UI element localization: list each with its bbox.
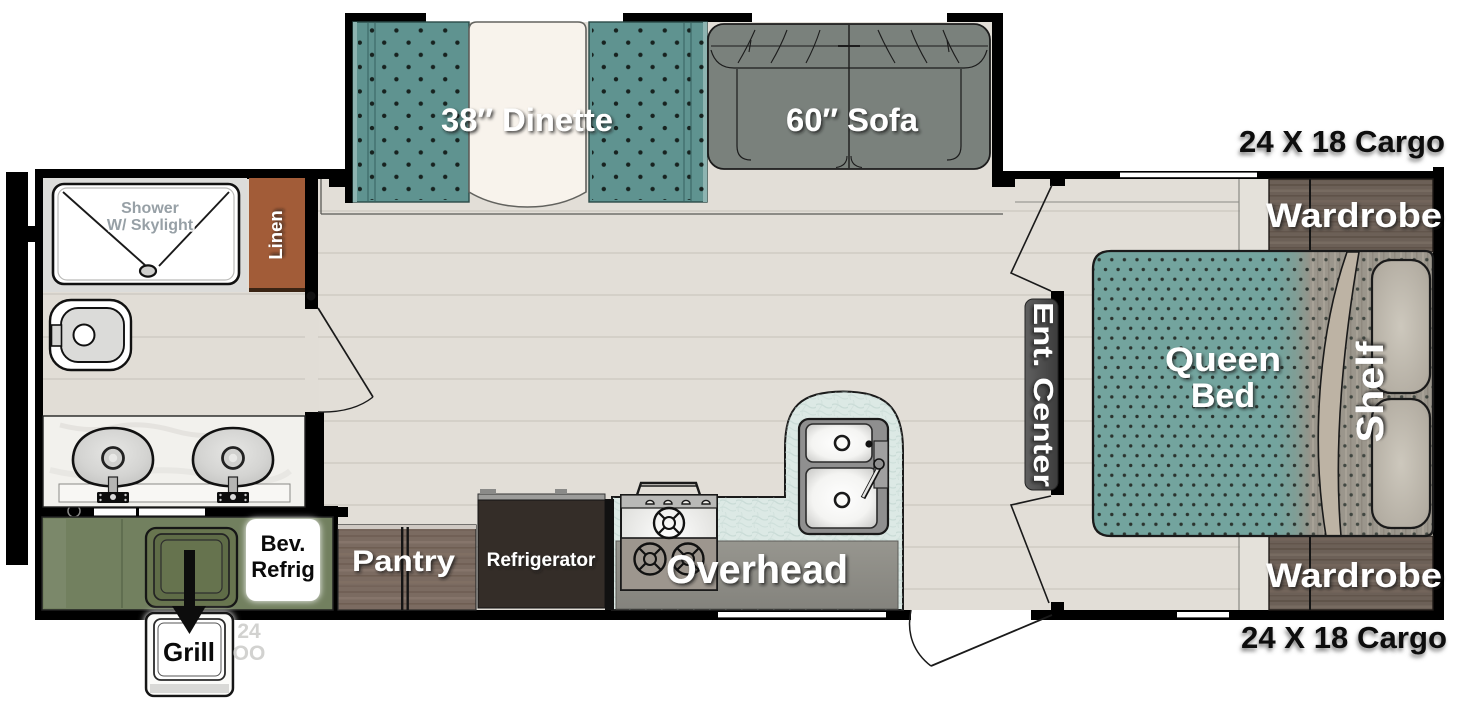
svg-text:60″ Sofa: 60″ Sofa xyxy=(786,102,918,138)
svg-text:Bev.: Bev. xyxy=(261,531,306,556)
svg-text:Linen: Linen xyxy=(265,210,286,259)
svg-text:38″ Dinette: 38″ Dinette xyxy=(441,102,613,138)
svg-text:Shower: Shower xyxy=(121,200,179,217)
svg-text:Overhead: Overhead xyxy=(666,548,848,592)
svg-text:Refrig: Refrig xyxy=(251,557,315,582)
svg-text:Refrigerator: Refrigerator xyxy=(487,550,596,571)
svg-text:24 X 18 Cargo: 24 X 18 Cargo xyxy=(1241,620,1447,655)
svg-text:Pantry: Pantry xyxy=(352,545,455,578)
svg-text:Wardrobe: Wardrobe xyxy=(1266,197,1442,235)
svg-text:Bed: Bed xyxy=(1191,377,1255,415)
svg-text:Ent. Center: Ent. Center xyxy=(1028,302,1059,487)
svg-text:24 X 18 Cargo: 24 X 18 Cargo xyxy=(1239,124,1445,159)
svg-text:OO: OO xyxy=(233,642,266,665)
svg-text:Grill: Grill xyxy=(163,637,215,667)
svg-text:Wardrobe: Wardrobe xyxy=(1266,557,1442,595)
svg-text:Queen: Queen xyxy=(1165,341,1281,379)
svg-text:W/ Skylight: W/ Skylight xyxy=(107,217,194,234)
svg-text:24: 24 xyxy=(237,620,261,643)
svg-text:Shelf: Shelf xyxy=(1350,341,1392,442)
